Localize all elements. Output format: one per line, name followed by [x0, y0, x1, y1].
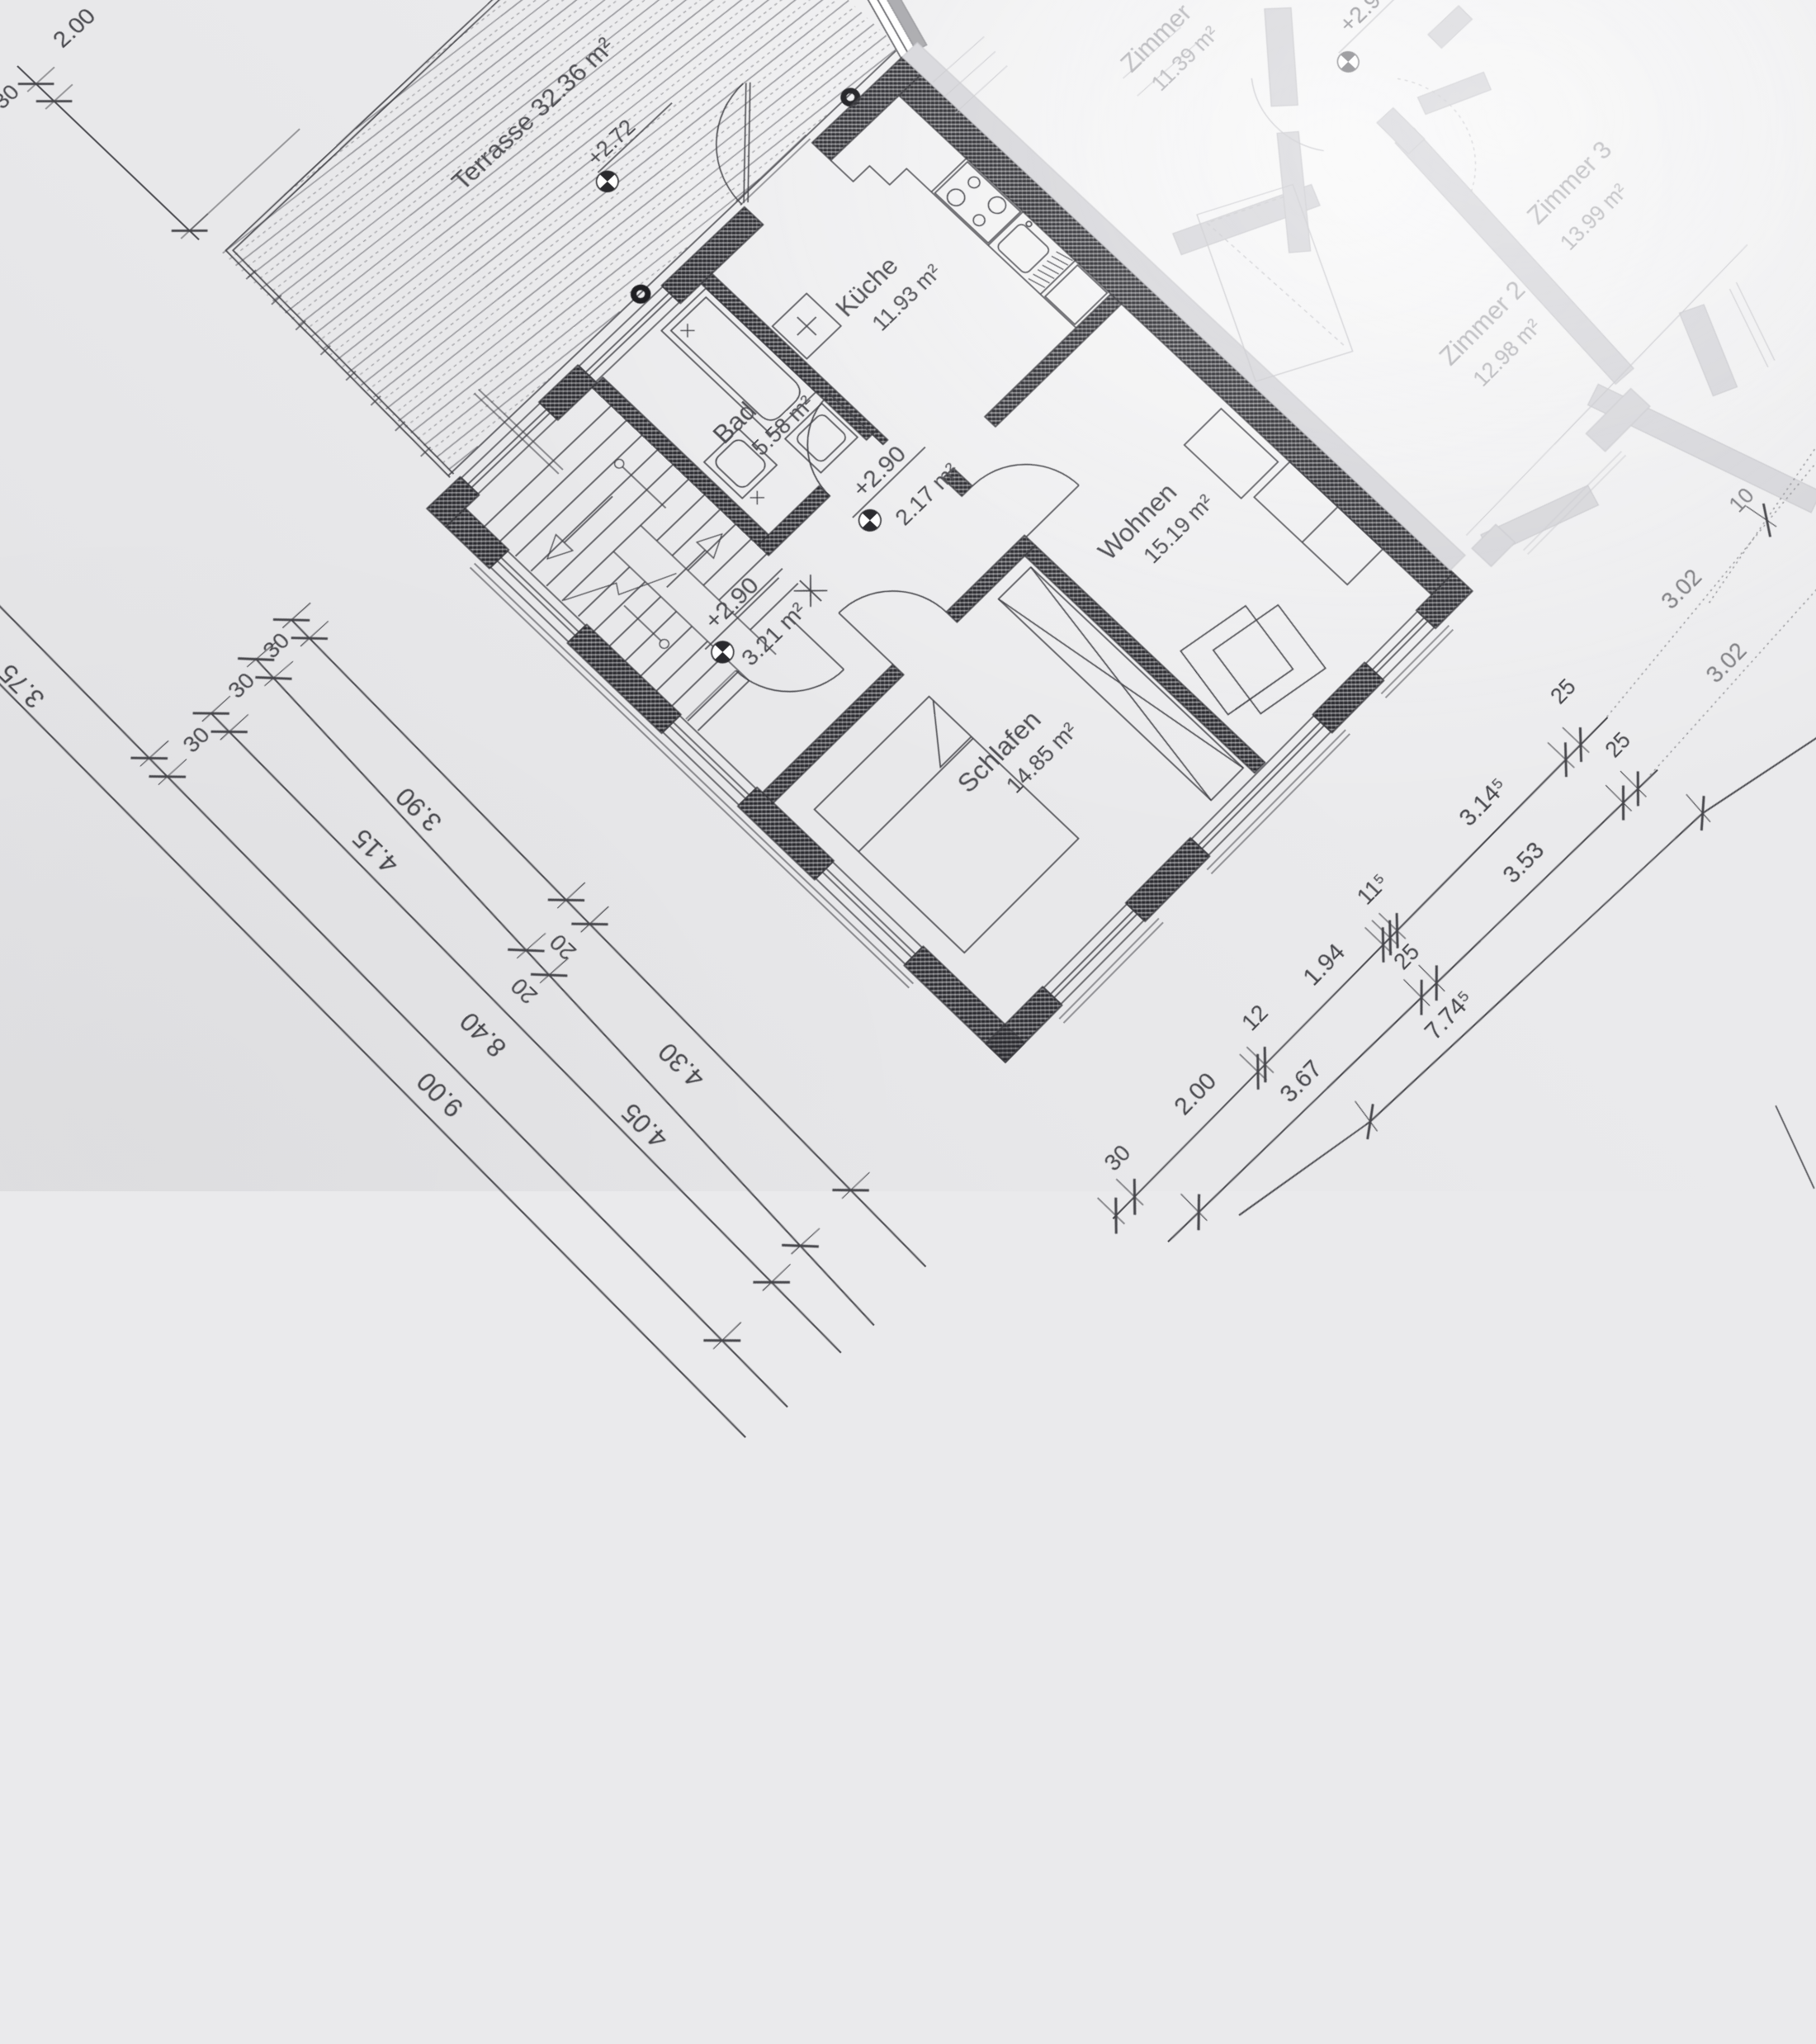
svg-text:2.00: 2.00 [48, 3, 102, 53]
svg-text:7.74⁵: 7.74⁵ [1419, 986, 1478, 1045]
svg-text:20: 20 [544, 930, 581, 966]
svg-text:4.30: 4.30 [652, 1037, 710, 1093]
svg-text:4.05: 4.05 [616, 1097, 674, 1154]
svg-text:4.15: 4.15 [347, 823, 404, 879]
svg-text:30: 30 [1099, 1139, 1136, 1176]
svg-text:10: 10 [1724, 483, 1759, 517]
svg-text:11⁵: 11⁵ [1352, 868, 1393, 909]
svg-text:25: 25 [1545, 674, 1581, 708]
svg-text:30: 30 [177, 722, 215, 757]
svg-text:+2.90: +2.90 [1334, 0, 1396, 38]
svg-text:25: 25 [1388, 939, 1425, 974]
svg-text:3.67: 3.67 [1275, 1055, 1327, 1108]
svg-text:2.00: 2.00 [1169, 1067, 1222, 1120]
svg-text:+2.90: +2.90 [847, 441, 911, 503]
svg-text:12: 12 [1237, 1000, 1273, 1035]
svg-text:3.02: 3.02 [1700, 637, 1752, 688]
svg-text:8.40: 8.40 [454, 1006, 512, 1063]
svg-text:30: 30 [258, 627, 295, 663]
svg-text:20: 20 [505, 973, 542, 1010]
svg-text:3.75: 3.75 [0, 659, 50, 714]
svg-text:1.94: 1.94 [1298, 939, 1350, 991]
svg-text:3.02: 3.02 [1656, 564, 1707, 614]
svg-text:25: 25 [1600, 727, 1635, 762]
svg-text:Terrasse 32.36 m²: Terrasse 32.36 m² [446, 32, 620, 196]
svg-text:3.90: 3.90 [390, 782, 447, 837]
